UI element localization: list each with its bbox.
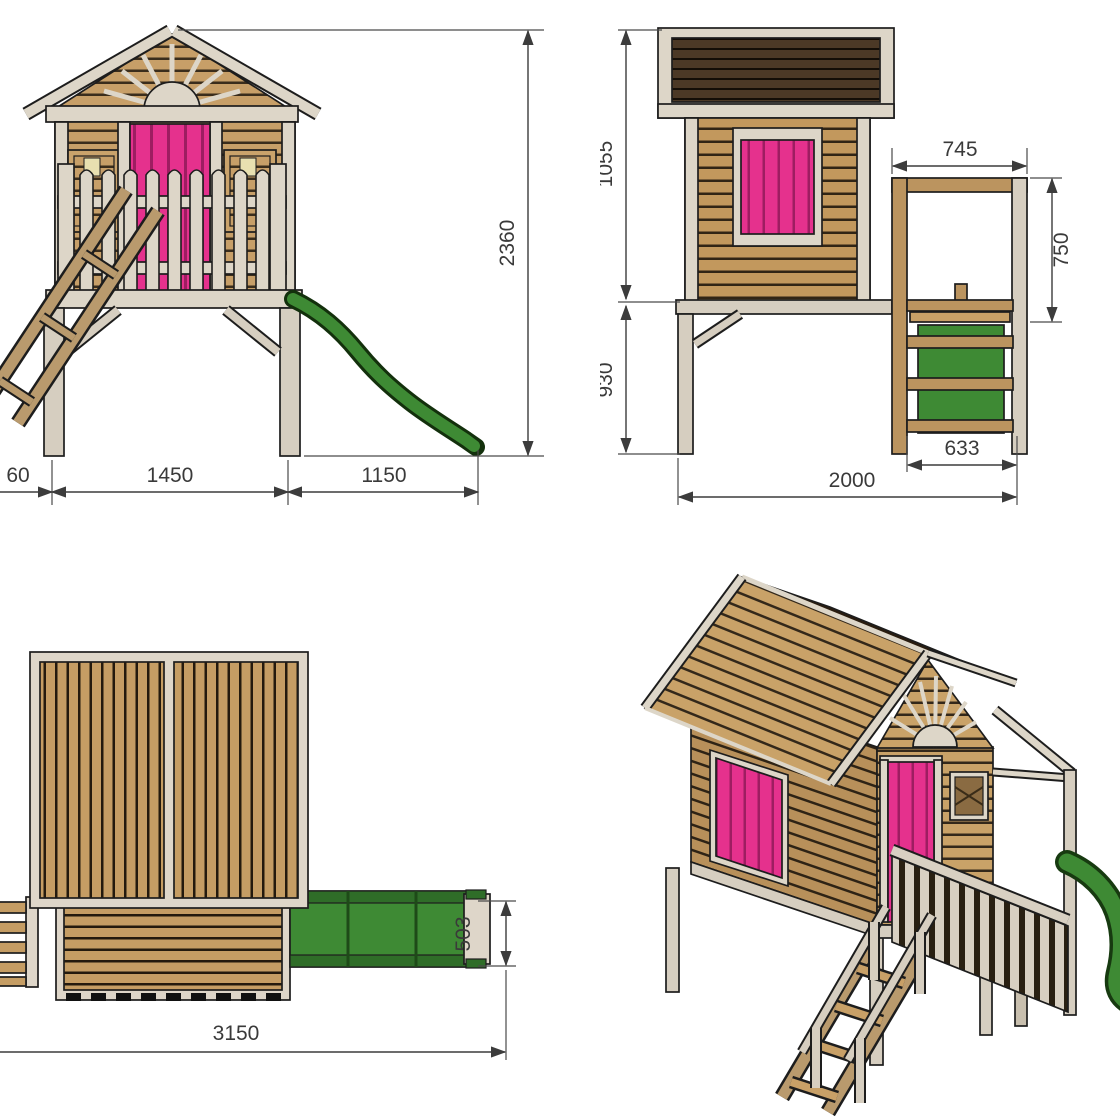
- side-platform: [676, 300, 892, 314]
- front-view: 2360 60 1450 1150: [0, 0, 560, 540]
- dim-label-ladder-depth: 633: [944, 437, 979, 460]
- technical-drawing-canvas: 2360 60 1450 1150: [0, 0, 1120, 1120]
- dim-label-porch-width: 745: [942, 138, 977, 161]
- dim-label-slide-width: 503: [452, 916, 475, 951]
- dim-label-total-length: 3150: [213, 1022, 260, 1045]
- dim-label-slide-length: 1150: [361, 464, 406, 487]
- front-platform: [46, 290, 302, 308]
- plan-roof: [30, 652, 308, 908]
- top-view: 503 3150: [0, 560, 560, 1120]
- dim-label-ladder-offset: 60: [6, 464, 29, 487]
- iso-shutter-window: [710, 750, 788, 886]
- front-slide: [293, 299, 476, 447]
- side-view: 1055 930 745 750 633 2000: [600, 0, 1120, 540]
- isometric-view: [620, 560, 1120, 1120]
- dim-label-total-depth: 2000: [829, 469, 876, 492]
- side-roof: [658, 28, 894, 118]
- side-dim-ladder-depth: 633: [907, 436, 1017, 505]
- dim-label-platform-height: 930: [600, 362, 617, 397]
- front-dim-bottom: 60 1450 1150: [0, 450, 478, 505]
- side-leg: [678, 314, 740, 454]
- side-dim-railing-height: 750: [1030, 178, 1073, 322]
- plan-ladder: [0, 897, 38, 987]
- front-roof-gable: [26, 31, 318, 114]
- side-dim-porch-width: 745: [892, 138, 1027, 174]
- iso-front-window: [950, 772, 988, 820]
- dim-label-railing-height: 750: [1050, 232, 1073, 267]
- dim-label-upper-height: 1055: [600, 141, 617, 188]
- dim-label-total-height: 2360: [496, 220, 519, 267]
- dim-label-frame-width: 1450: [147, 464, 194, 487]
- side-porch: [892, 178, 1027, 454]
- side-window: [733, 128, 822, 246]
